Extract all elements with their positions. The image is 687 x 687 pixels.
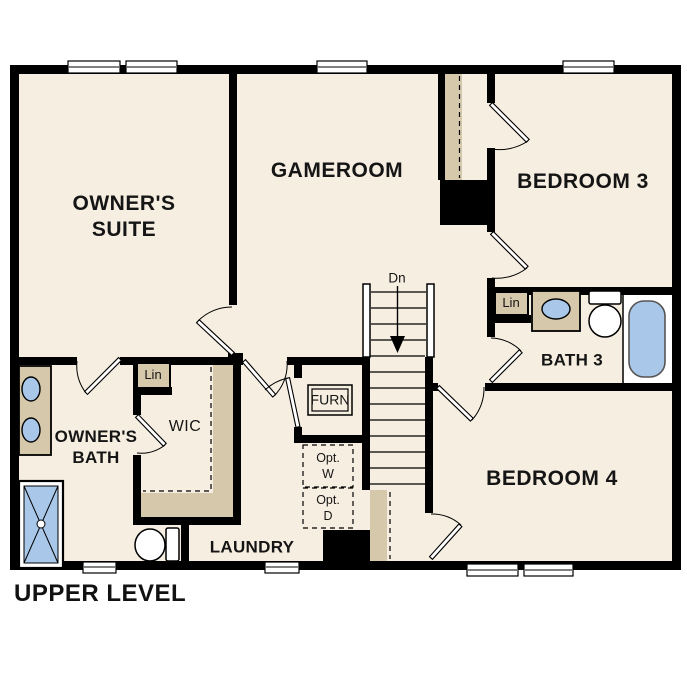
shower-icon <box>19 481 63 568</box>
stair-rail-right <box>427 284 434 357</box>
bedroom4-label: BEDROOM 4 <box>486 466 618 492</box>
wall-suite-gameroom <box>229 74 237 305</box>
wall-furn-top <box>287 357 370 365</box>
window <box>83 562 116 573</box>
stairs-down-label: Dn <box>388 271 405 288</box>
wall-bed3-closet-left <box>438 74 445 180</box>
wall-stair-left <box>362 357 370 490</box>
laundry-label: LAUNDRY <box>210 536 295 557</box>
wall-bed3-b <box>487 148 495 232</box>
window <box>524 564 573 576</box>
wall-bed3-c <box>487 278 495 337</box>
opt-dryer-label: Opt.D <box>316 492 340 525</box>
wall-toilet-nook <box>181 517 189 569</box>
window <box>68 61 120 73</box>
furnace-label: FURN <box>311 391 350 409</box>
stair-rail-left <box>363 284 370 357</box>
wic-shelf-bottom <box>141 493 233 517</box>
wic-label: WIC <box>169 417 202 437</box>
linen-bath3-label: Lin <box>502 295 519 311</box>
owners-suite-label: OWNER'SSUITE <box>73 191 176 244</box>
wall-mass-bed3 <box>440 180 493 225</box>
wall-mass-laundry <box>323 530 370 569</box>
floorplan-canvas: OWNER'SSUITE GAMEROOM BEDROOM 3 BATH 3 B… <box>0 0 687 687</box>
plan-title: UPPER LEVEL <box>14 580 186 608</box>
bed4-closet-shelf <box>370 490 387 561</box>
bathtub-icon <box>623 295 672 383</box>
window <box>563 61 614 73</box>
owners-bath-label: OWNER'SBATH <box>55 426 138 469</box>
wall-bath3-south <box>485 383 681 391</box>
wall-stair-junction <box>425 383 438 391</box>
wall-bed3-a <box>487 74 495 103</box>
opt-washer-label: Opt.W <box>316 450 340 483</box>
toilet-icon <box>135 528 179 561</box>
sink-icon <box>22 418 40 442</box>
sink-icon <box>542 299 570 319</box>
wall-wic-right <box>233 365 241 517</box>
linen-wic-label: Lin <box>144 367 161 383</box>
window <box>317 61 367 73</box>
wall-furn-bottom <box>294 435 370 443</box>
toilet-icon <box>589 291 621 337</box>
wall-stair-right <box>425 357 433 513</box>
bedroom3-label: BEDROOM 3 <box>517 169 649 195</box>
window <box>265 562 299 573</box>
wall-suite-south-left <box>19 357 77 365</box>
window <box>126 61 177 73</box>
gameroom-label: GAMEROOM <box>271 158 403 184</box>
window <box>467 564 518 576</box>
bath3-label: BATH 3 <box>541 349 603 370</box>
wall-furn-left-stub-top <box>294 365 302 378</box>
sink-icon <box>22 377 40 401</box>
